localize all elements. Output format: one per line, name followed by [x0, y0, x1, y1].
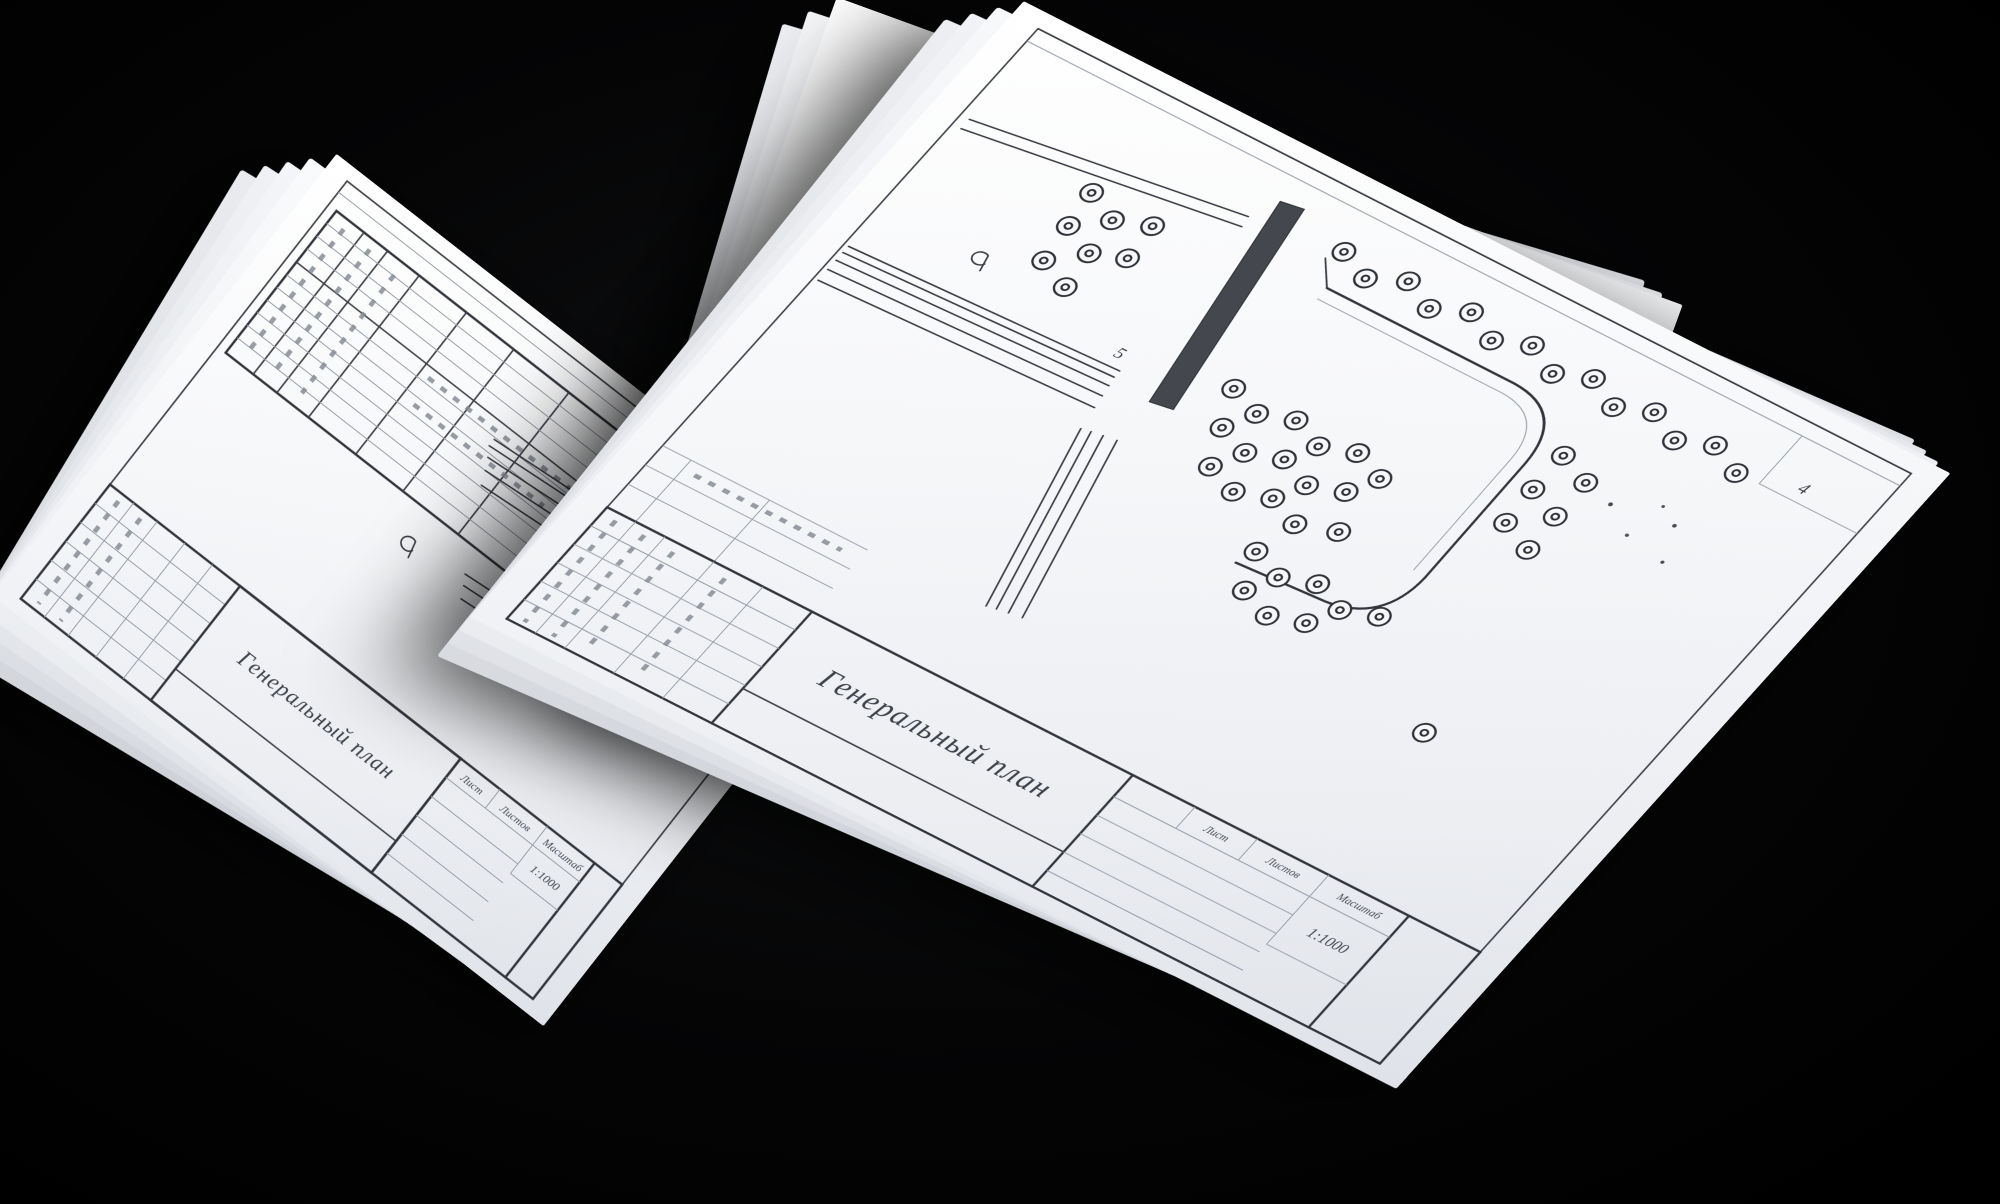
- approval-block: [607, 446, 867, 612]
- area-number-label: 4: [1793, 480, 1814, 498]
- building-footprint: 5: [1096, 188, 1339, 412]
- scale-value: 1:1000: [1303, 925, 1353, 957]
- back-sheet-title: Генеральный план: [232, 645, 400, 784]
- plot-boundary: [1109, 258, 1591, 633]
- sheets-total-label: Листов: [496, 802, 533, 834]
- tree-cluster: [1009, 181, 1172, 312]
- plan-mark: [966, 249, 993, 270]
- front-sheet-drawing: 4 5: [470, 1, 1951, 1089]
- tree-cluster: [1315, 237, 1768, 486]
- tree-cluster: [1181, 539, 1499, 745]
- drawing-frame: 4: [507, 29, 1912, 1064]
- front-drawing-stack: 4 5: [470, 1, 1951, 1089]
- front-sheet: 4 5: [470, 1, 1951, 1089]
- scale-value: 1:1000: [527, 862, 562, 894]
- plan-mark: [1588, 485, 1700, 564]
- photo-scene: Генеральный план Лист Листов Масштаб 1:1…: [0, 0, 2000, 1204]
- scale-label: Масштаб: [1333, 891, 1384, 922]
- front-sheet-title: Генеральный план: [811, 662, 1062, 804]
- tree-cluster: [1153, 377, 1409, 555]
- sheet-label: Лист: [1200, 823, 1232, 844]
- building-number-label: 5: [1109, 345, 1130, 363]
- tree-cluster: [1478, 443, 1613, 562]
- plan-mark: [395, 533, 419, 557]
